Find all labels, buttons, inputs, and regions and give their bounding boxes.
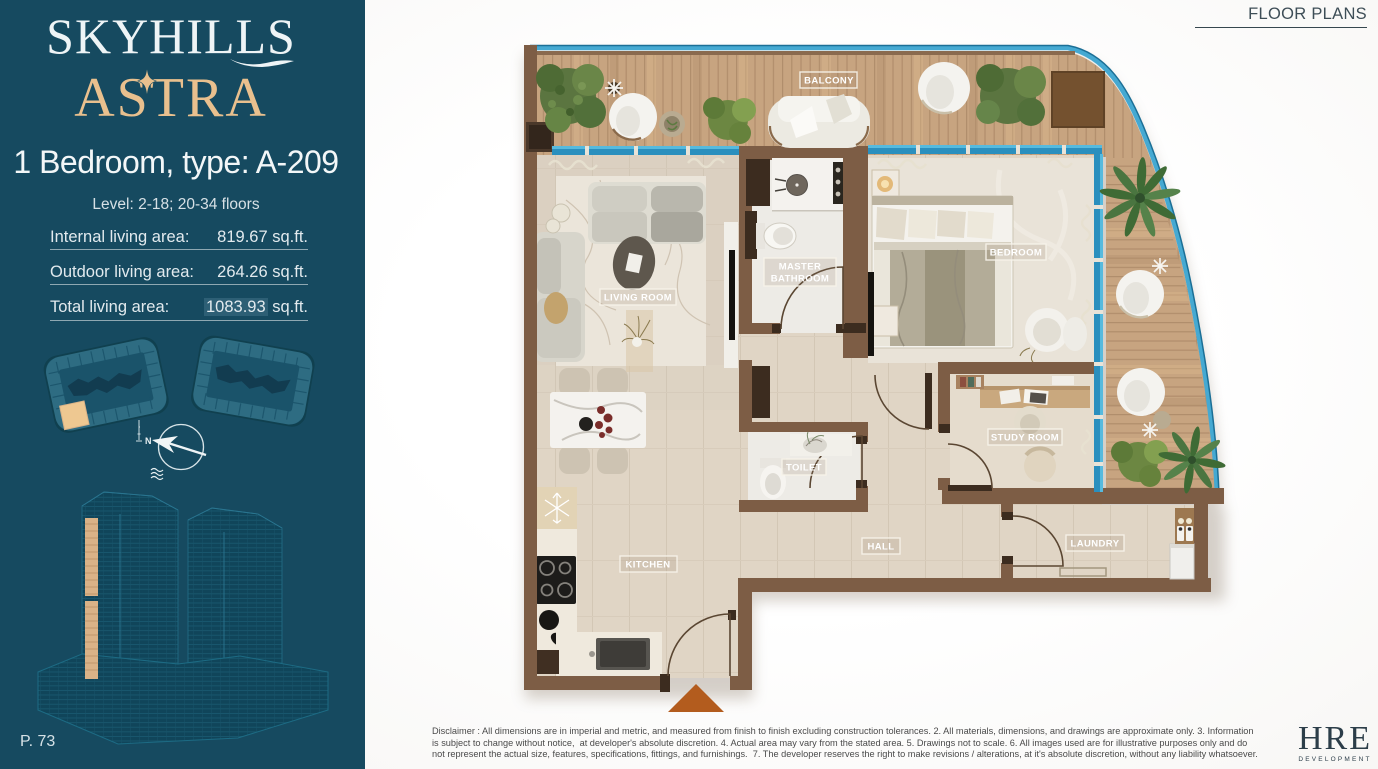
svg-text:BEDROOM: BEDROOM — [990, 248, 1042, 259]
svg-text:STUDY ROOM: STUDY ROOM — [991, 433, 1059, 444]
svg-text:LAUNDRY: LAUNDRY — [1071, 539, 1120, 550]
svg-text:TOILET: TOILET — [786, 463, 822, 474]
svg-text:BATHROOM: BATHROOM — [771, 274, 829, 285]
svg-text:BALCONY: BALCONY — [804, 76, 854, 87]
svg-text:KITCHEN: KITCHEN — [625, 560, 670, 571]
svg-text:HALL: HALL — [868, 542, 895, 553]
svg-text:LIVING ROOM: LIVING ROOM — [604, 293, 672, 304]
svg-text:MASTER: MASTER — [779, 262, 822, 273]
